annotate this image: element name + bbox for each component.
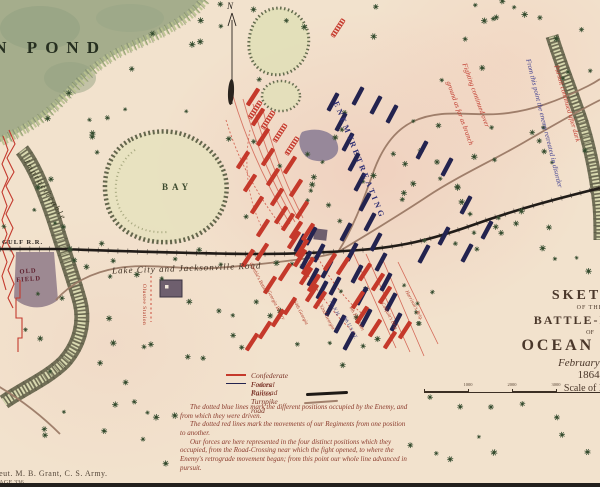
tree-symbol <box>492 223 499 230</box>
tree-symbol <box>252 298 260 306</box>
confederate-unit-bar <box>336 256 351 275</box>
tree-symbol <box>105 314 114 323</box>
scale-tick <box>556 389 557 393</box>
pond-label: AN POND <box>0 38 107 58</box>
confederate-unit-bar <box>270 187 285 206</box>
old-field-line1: OLD <box>19 267 37 275</box>
tree-symbol <box>217 23 224 30</box>
tree-symbol <box>369 32 378 41</box>
scale-tick <box>468 389 469 393</box>
confederate-unit-bar <box>283 155 298 174</box>
scale-tick <box>512 389 513 393</box>
tree-symbol <box>83 263 90 270</box>
confederate-unit-bar <box>289 178 304 197</box>
tree-symbol <box>196 16 205 25</box>
tree-symbol <box>456 403 464 411</box>
tree-symbol <box>294 341 301 348</box>
tree-symbol <box>446 455 455 464</box>
tree-symbol <box>110 340 117 347</box>
title-of: OF <box>470 330 600 336</box>
tree-symbol <box>200 355 206 361</box>
tree-symbol <box>184 353 192 361</box>
title-sketch: SKETCH <box>470 288 600 304</box>
title-ocean-pond: OCEAN POND <box>470 337 600 355</box>
federal-unit-bar <box>328 276 341 296</box>
title-battlefield: BATTLE-FIELD <box>470 313 600 328</box>
confederate-unit-bar <box>255 242 270 261</box>
title-block: SKETCH OF THE BATTLE-FIELD OF OCEAN POND… <box>470 288 600 394</box>
tree-symbol <box>61 409 67 415</box>
federal-swatch <box>226 383 246 385</box>
tree-symbol <box>170 411 179 420</box>
tree-symbol <box>230 312 236 318</box>
tree-symbol <box>584 267 593 276</box>
tree-symbol <box>497 229 505 237</box>
scale-number: 3000 <box>552 382 561 387</box>
tree-symbol <box>184 109 188 113</box>
tree-symbol <box>148 341 154 347</box>
federal-unit-bar <box>417 244 430 264</box>
note-blue-lines: The dotted blue lines mark the different… <box>180 403 408 420</box>
confederate-camp-bar <box>285 136 300 155</box>
tree-symbol <box>435 122 442 129</box>
old-field-label: OLDFIELD <box>15 267 41 286</box>
tree-symbol <box>40 425 48 433</box>
tree-symbol <box>94 150 100 156</box>
tree-symbol <box>472 2 478 8</box>
tree-symbol <box>196 37 205 46</box>
note-positions: Our forces are here represented in the f… <box>180 438 408 473</box>
station-label: Olustee Station <box>141 284 147 325</box>
confederate-unit-bar <box>250 195 265 214</box>
tree-symbol <box>536 14 544 22</box>
confederate-camp-bar <box>331 18 346 37</box>
confederate-unit-bar <box>278 262 293 281</box>
tree-symbol <box>558 431 566 439</box>
compass-rose <box>227 13 236 105</box>
tree-symbol <box>327 340 333 346</box>
federal-unit-bar <box>369 95 382 115</box>
federal-unit-bar <box>385 104 398 124</box>
tree-symbol <box>277 163 282 168</box>
tree-symbol <box>145 410 150 415</box>
tree-symbol <box>308 187 314 193</box>
tree-symbol <box>583 448 591 456</box>
tree-symbol <box>139 436 146 443</box>
federal-unit-bar <box>351 86 364 106</box>
tree-symbol <box>427 394 433 400</box>
federal-unit-bar <box>480 220 493 240</box>
lake-city-jacksonville-road <box>56 252 338 300</box>
tree-symbol <box>152 413 161 422</box>
tree-symbol <box>215 307 223 315</box>
map-notes: The dotted blue lines mark the different… <box>180 403 408 472</box>
tree-symbol <box>250 6 257 13</box>
tree-symbol <box>185 298 193 306</box>
tree-symbol <box>390 151 397 158</box>
confederate-swatch <box>226 374 246 376</box>
tree-symbol <box>266 312 275 321</box>
federal-unit-bar <box>460 243 473 263</box>
title-date: February 20th <box>470 357 600 369</box>
federal-unit-bar <box>440 157 453 177</box>
tree-symbol <box>325 202 332 209</box>
tree-symbol <box>578 26 585 33</box>
battle-pond-patch <box>299 130 338 162</box>
tree-symbol <box>518 400 526 408</box>
confederate-camp-bar <box>273 123 288 142</box>
confederate-unit-bar <box>245 332 260 351</box>
tree-symbol <box>399 196 407 204</box>
scale-number: 2000 <box>508 382 517 387</box>
confederate-unit-bar <box>243 173 258 192</box>
confederate-unit-bar <box>236 150 251 169</box>
tree-symbol <box>433 158 442 167</box>
tree-symbol <box>131 398 139 406</box>
tree-symbol <box>310 173 318 181</box>
battle-map: AN POND BAY Impracticable OLDFIELD GULF … <box>0 0 600 487</box>
tree-symbol <box>140 343 147 350</box>
tree-symbol <box>511 5 517 11</box>
federal-unit-bar <box>374 252 387 272</box>
tree-symbol <box>41 431 49 439</box>
tree-symbol <box>454 184 461 191</box>
tree-symbol <box>499 0 506 5</box>
tree-symbol <box>336 217 343 224</box>
confederate-unit-bar <box>258 320 273 339</box>
tree-symbol <box>122 106 128 112</box>
scale-segment <box>424 391 468 394</box>
scale-bar: 1000 2000 3000 <box>424 383 600 394</box>
old-field-line2: FIELD <box>16 276 41 285</box>
tree-symbol <box>587 67 594 74</box>
tree-symbol <box>480 16 489 25</box>
scale-segment <box>512 391 556 394</box>
tree-symbol <box>238 344 246 352</box>
tree-symbol <box>401 282 407 288</box>
tree-symbol <box>467 211 474 218</box>
tree-symbol <box>99 240 105 246</box>
tree-symbol <box>161 459 170 468</box>
tree-symbol <box>112 401 119 408</box>
tree-symbol <box>545 223 553 231</box>
confederate-unit-bar <box>256 127 271 146</box>
scale-tick <box>424 389 425 393</box>
bay-label: BAY <box>162 182 192 192</box>
tree-symbol <box>128 65 136 73</box>
tree-symbol <box>172 256 179 263</box>
tree-symbol <box>31 207 37 213</box>
title-year: 1864. <box>470 369 600 381</box>
station-building <box>160 280 182 297</box>
tree-symbol <box>462 36 468 42</box>
tree-symbol <box>552 256 558 262</box>
tree-symbol <box>256 77 262 83</box>
tree-symbol <box>243 214 249 220</box>
north-label: N <box>227 1 233 11</box>
tree-symbol <box>229 331 237 339</box>
tree-symbol <box>512 219 520 227</box>
tree-symbol <box>473 245 480 252</box>
tree-symbol <box>521 11 528 18</box>
tree-symbol <box>553 413 561 421</box>
tree-symbol <box>490 448 498 456</box>
tree-symbol <box>471 229 477 235</box>
tree-symbol <box>487 403 495 411</box>
photo-edge <box>0 483 600 487</box>
tree-symbol <box>100 427 108 435</box>
tree-symbol <box>373 335 382 344</box>
tree-symbol <box>478 64 486 72</box>
tree-symbol <box>538 244 547 253</box>
ocean-pond <box>0 0 205 142</box>
tree-symbol <box>104 114 111 121</box>
tree-symbol <box>476 434 482 440</box>
tree-symbol <box>409 179 418 188</box>
tree-symbol <box>536 138 542 144</box>
tree-symbol <box>437 175 444 182</box>
tree-symbol <box>121 378 130 387</box>
gulf-rr-label: GULF R.R. <box>2 239 43 246</box>
confederate-unit-bar <box>368 318 383 337</box>
tree-symbol <box>22 326 29 333</box>
tree-symbol <box>400 189 408 197</box>
scale-number: 1000 <box>464 382 473 387</box>
cartographer-credit: Lieut. M. B. Grant, C. S. Army. <box>0 469 108 478</box>
note-red-lines: The dotted red lines mark the movements … <box>180 420 408 437</box>
tree-symbol <box>359 342 366 349</box>
tree-symbol <box>217 1 223 7</box>
tree-symbol <box>36 334 45 343</box>
tree-symbol <box>401 160 409 168</box>
tree-symbol <box>470 152 479 161</box>
tree-symbol <box>429 289 436 296</box>
tree-symbol <box>189 41 196 48</box>
title-of-the: OF THE <box>470 305 600 311</box>
tree-symbol <box>372 3 380 11</box>
tree-symbol <box>338 361 346 369</box>
tree-symbol <box>109 257 116 264</box>
tree-symbol <box>96 359 104 367</box>
confederate-unit-bar <box>256 218 271 237</box>
tree-symbol <box>308 180 317 189</box>
tree-symbol <box>86 117 92 123</box>
tree-symbol <box>452 241 458 247</box>
federal-unit-bar <box>415 140 428 160</box>
tree-symbol <box>574 255 580 261</box>
tree-symbol <box>433 450 439 456</box>
